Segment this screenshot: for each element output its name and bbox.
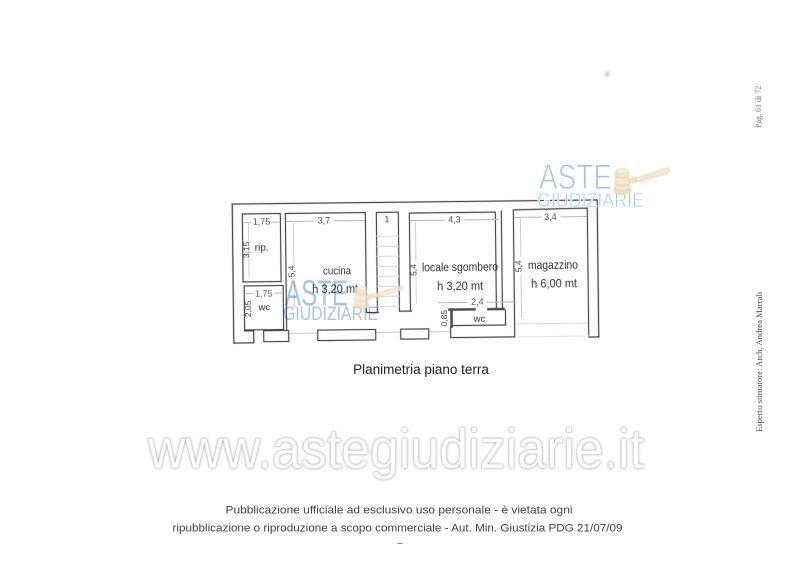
svg-text:3,7: 3,7	[318, 215, 331, 225]
svg-text:Pubblicazione ufficiale ad esc: Pubblicazione ufficiale ad esclusivo uso…	[226, 505, 573, 517]
svg-text:wc: wc	[258, 302, 271, 313]
svg-text:1: 1	[384, 214, 389, 224]
svg-text:3,15: 3,15	[241, 241, 251, 258]
svg-text:rip.: rip.	[255, 243, 269, 254]
svg-text:2,05: 2,05	[243, 300, 253, 317]
svg-text:1,75: 1,75	[255, 289, 273, 299]
svg-text:3,4: 3,4	[544, 212, 557, 222]
svg-text:1,75: 1,75	[253, 217, 271, 227]
svg-text:ripubblicazione o riproduzione: ripubblicazione o riproduzione a scopo c…	[173, 523, 623, 535]
svg-text:www.astegiudiziarie.it: www.astegiudiziarie.it	[147, 417, 644, 480]
svg-text:Esperto stimatore: Arch. Andre: Esperto stimatore: Arch. Andrea Marrali	[754, 291, 764, 432]
svg-text:0,85: 0,85	[439, 310, 449, 327]
svg-text:magazzino: magazzino	[528, 260, 578, 273]
svg-text:4,3: 4,3	[448, 214, 461, 224]
svg-text:Pag. 61 di 72: Pag. 61 di 72	[754, 86, 763, 128]
svg-text:2,4: 2,4	[471, 297, 484, 307]
svg-text:Planimetria piano terra: Planimetria piano terra	[353, 362, 489, 377]
svg-text:locale sgombero: locale sgombero	[422, 262, 498, 275]
svg-text:5,4: 5,4	[408, 264, 418, 276]
svg-text:wc: wc	[473, 314, 486, 325]
svg-text:h 6,00 mt: h 6,00 mt	[531, 278, 578, 291]
svg-text:h 3,20 mt: h 3,20 mt	[437, 281, 484, 294]
svg-text:5,4: 5,4	[513, 260, 523, 272]
